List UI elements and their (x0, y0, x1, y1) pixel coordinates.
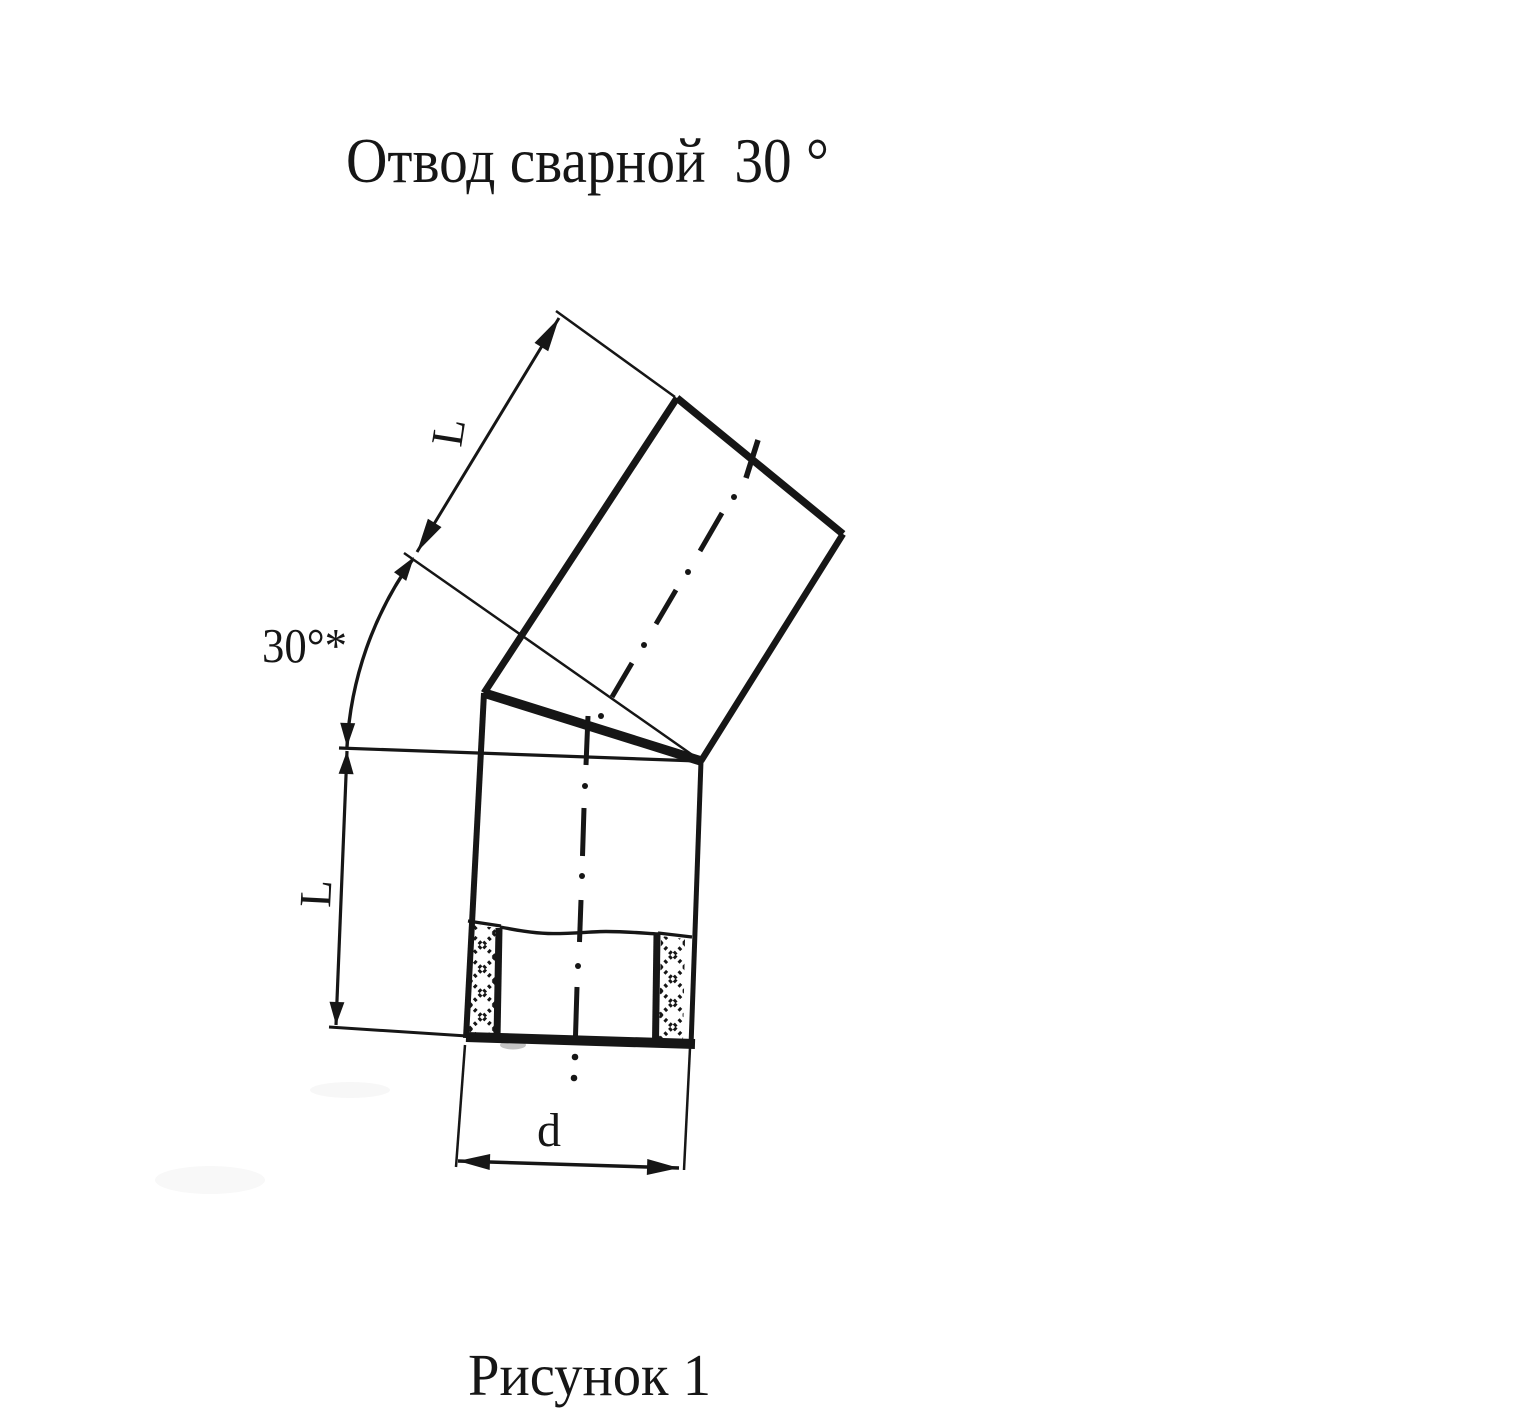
svg-text:Отвод сварной 30 °: Отвод сварной 30 ° (346, 126, 829, 196)
svg-text:d: d (537, 1104, 561, 1157)
svg-text:30°*: 30°* (262, 618, 347, 673)
svg-text:Рисунок 1: Рисунок 1 (468, 1342, 711, 1408)
svg-text:L: L (421, 415, 475, 450)
svg-text:L: L (290, 878, 341, 908)
